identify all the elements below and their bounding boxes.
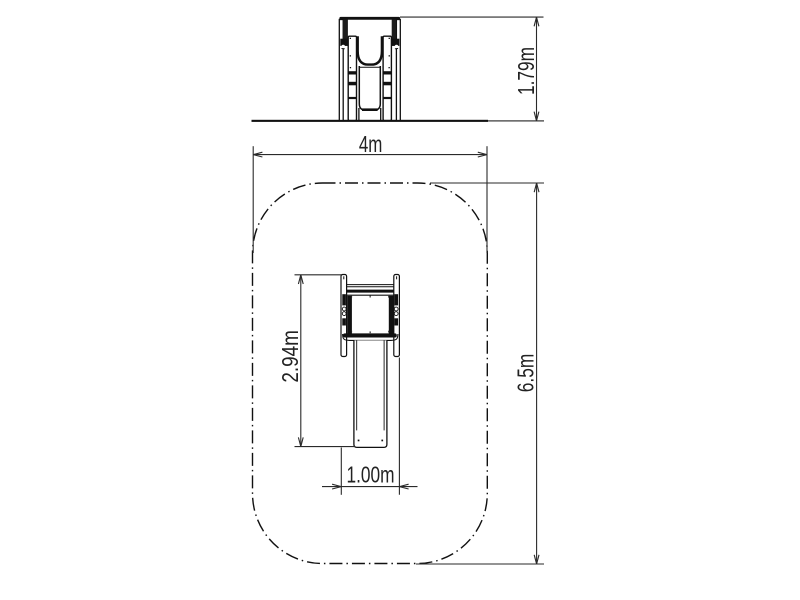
svg-text:1.79m: 1.79m [513,47,539,95]
svg-text:6.5m: 6.5m [513,354,539,393]
svg-text:4m: 4m [359,131,383,157]
svg-text:2.94m: 2.94m [277,330,303,383]
svg-text:1.00m: 1.00m [347,461,395,487]
